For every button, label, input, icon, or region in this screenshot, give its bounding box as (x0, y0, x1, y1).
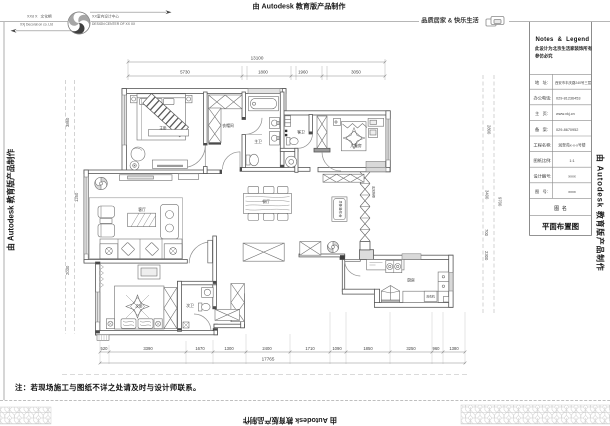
svg-text:图纸比例:: 图纸比例: (534, 157, 552, 164)
svg-text:2300: 2300 (484, 251, 489, 261)
svg-text:平面布置图: 平面布置图 (542, 222, 579, 231)
svg-text:9700: 9700 (498, 197, 503, 207)
svg-text:图 名: 图 名 (554, 205, 567, 212)
svg-text:www.xkj.cn: www.xkj.cn (556, 112, 575, 116)
svg-text:1250: 1250 (74, 192, 79, 202)
svg-text:衣帽间: 衣帽间 (222, 123, 234, 128)
svg-text:1380: 1380 (449, 346, 459, 351)
svg-text:早餐(操作)台: 早餐(操作)台 (339, 201, 344, 218)
svg-text:3400: 3400 (485, 190, 490, 200)
svg-text:520: 520 (101, 346, 109, 351)
svg-text:1300: 1300 (224, 346, 234, 351)
svg-text:1710: 1710 (305, 346, 315, 351)
svg-text:1:1: 1:1 (569, 159, 574, 163)
svg-text:地 址:: 地 址: (535, 79, 548, 85)
svg-text:主 页:: 主 页: (535, 110, 548, 117)
svg-text:次卧: 次卧 (135, 304, 143, 309)
svg-text:主卫: 主卫 (254, 139, 262, 144)
svg-text:儿童房: 儿童房 (350, 143, 362, 148)
svg-text:由 Autodesk 教育版产品制作: 由 Autodesk 教育版产品制作 (242, 416, 337, 425)
svg-text:办公电话:: 办公电话: (534, 95, 552, 102)
svg-text:由 Autodesk 教育版产品制作: 由 Autodesk 教育版产品制作 (6, 149, 16, 251)
svg-text:主卧: 主卧 (159, 126, 167, 131)
svg-text:客厅: 客厅 (138, 207, 146, 212)
svg-text:960: 960 (433, 346, 441, 351)
svg-text:3860: 3860 (65, 117, 70, 127)
svg-text:1670: 1670 (195, 346, 205, 351)
svg-text:1960: 1960 (298, 70, 308, 75)
svg-text:西安市丰庆路240号三层: 西安市丰庆路240号三层 (555, 80, 592, 85)
svg-text:DESIGN CENTER OF XX XX: DESIGN CENTER OF XX XX (92, 22, 136, 26)
svg-text:700: 700 (484, 229, 489, 237)
svg-text:润翠苑x-x-x号楼: 润翠苑x-x-x号楼 (558, 142, 585, 147)
svg-text:餐厅: 餐厅 (262, 199, 270, 204)
svg-text:3250: 3250 (406, 346, 416, 351)
svg-text:1850: 1850 (363, 346, 373, 351)
svg-text:1800: 1800 (258, 70, 268, 75)
svg-text:xxxx: xxxx (568, 190, 576, 194)
svg-text:17765: 17765 (262, 357, 275, 362)
svg-text:5730: 5730 (180, 70, 190, 75)
svg-text:设计编号:: 设计编号: (534, 173, 552, 180)
svg-text:3390: 3390 (143, 346, 153, 351)
svg-text:由 Autodesk 教育版产品制作: 由 Autodesk 教育版产品制作 (252, 2, 345, 11)
svg-text:参仿必究: 参仿必究 (535, 53, 553, 60)
svg-text:2030: 2030 (65, 265, 70, 275)
svg-text:029-8670952: 029-8670952 (556, 128, 578, 132)
svg-text:XXj Decorat on co. Ltd: XXj Decorat on co. Ltd (20, 23, 53, 27)
svg-text:洗衣机: 洗衣机 (426, 295, 435, 299)
svg-text:厨房: 厨房 (407, 278, 415, 283)
svg-text:工程名称:: 工程名称: (534, 141, 552, 148)
svg-text:客卫: 客卫 (297, 130, 305, 135)
svg-text:注：若现场施工与图纸不详之处请及时与设计师联系。: 注：若现场施工与图纸不详之处请及时与设计师联系。 (15, 383, 201, 392)
svg-text:3050: 3050 (351, 70, 361, 75)
svg-text:xxxx: xxxx (568, 175, 576, 179)
svg-text:由 Autodesk 教育版产品制作: 由 Autodesk 教育版产品制作 (596, 154, 606, 272)
svg-text:1090: 1090 (332, 346, 342, 351)
svg-text:029-81236453: 029-81236453 (556, 97, 581, 101)
svg-text:XXd X 文化期: XXd X 文化期 (27, 13, 52, 18)
svg-text:2800: 2800 (487, 125, 492, 135)
svg-text:玄关鞋柜: 玄关鞋柜 (372, 186, 377, 198)
svg-text:Notes & Legend: Notes & Legend (536, 37, 590, 43)
svg-text:2400: 2400 (262, 346, 272, 351)
svg-text:次卫: 次卫 (186, 303, 194, 308)
svg-text:此设计为北京生活家装饰所有: 此设计为北京生活家装饰所有 (535, 45, 593, 52)
svg-text:备 案:: 备 案: (535, 126, 548, 133)
svg-text:XX室内设计中心: XX室内设计中心 (92, 13, 119, 18)
svg-text:13100: 13100 (251, 56, 264, 61)
svg-text:品质居家 & 快乐生活: 品质居家 & 快乐生活 (421, 16, 479, 24)
